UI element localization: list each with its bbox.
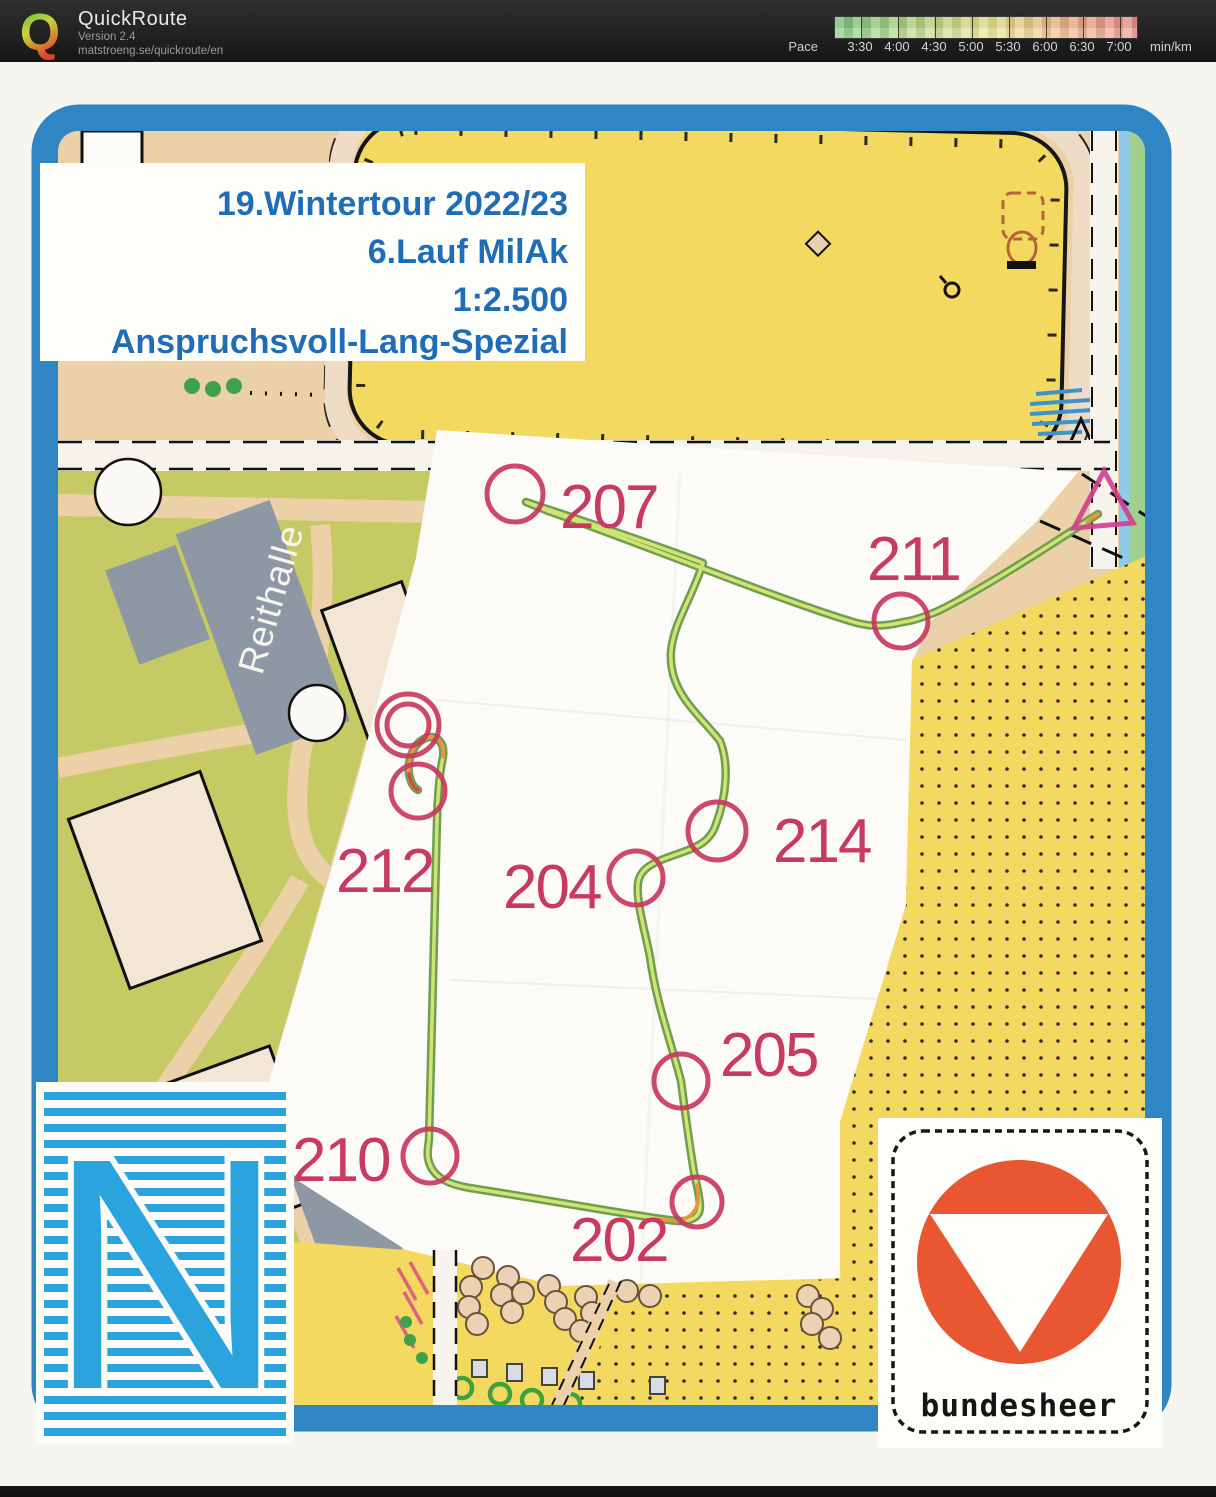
pace-tick: [1009, 17, 1010, 38]
title-line-4: Anspruchsvoll-Lang-Spezial: [111, 323, 568, 361]
pace-scale-label: Pace: [768, 39, 818, 54]
control-number-207: 207: [560, 473, 657, 542]
pace-tick-label: 7:00: [1106, 39, 1131, 54]
pace-tick-label: 6:00: [1032, 39, 1057, 54]
pace-unit-label: min/km: [1150, 39, 1192, 54]
app-title: QuickRoute: [78, 8, 188, 31]
control-number-210: 210: [292, 1126, 390, 1195]
pace-tick-label: 6:30: [1069, 39, 1094, 54]
logo-letter: Q: [20, 4, 60, 60]
orienteering-map: Reithalle: [0, 62, 1216, 1492]
pace-tick: [935, 17, 936, 38]
pace-tick-label: 4:30: [921, 39, 946, 54]
app-url: matstroeng.se/quickroute/en: [78, 45, 223, 57]
pace-tick: [972, 17, 973, 38]
quickroute-logo-icon: Q: [12, 4, 68, 60]
bundesheer-text: bundesheer: [921, 1388, 1118, 1424]
title-line-1: 19.Wintertour 2022/23: [217, 185, 568, 223]
control-number-202: 202: [570, 1206, 667, 1275]
pace-tick: [1120, 17, 1121, 38]
pace-tick: [1046, 17, 1047, 38]
pace-tick: [861, 17, 862, 38]
control-number-214: 214: [773, 807, 871, 876]
control-number-212: 212: [336, 837, 433, 906]
pace-tick: [898, 17, 899, 38]
pace-tick-label: 5:30: [995, 39, 1020, 54]
pace-tick-label: 4:00: [884, 39, 909, 54]
app-header: Q QuickRoute Version 2.4 matstroeng.se/q…: [0, 0, 1216, 63]
pace-tick: [1083, 17, 1084, 38]
map-canvas[interactable]: Reithalle: [0, 62, 1216, 1492]
bundesheer-logo: bundesheer: [878, 1118, 1162, 1448]
app-version: Version 2.4: [78, 31, 136, 43]
control-number-211: 211: [867, 525, 960, 594]
pace-gradient-bar: [834, 16, 1138, 39]
map-title-block: 19.Wintertour 2022/23 6.Lauf MilAk 1:2.5…: [40, 163, 585, 361]
window-bottom-edge: [0, 1486, 1216, 1492]
n-logo-letter: N: [47, 1089, 285, 1458]
pace-tick-label: 5:00: [958, 39, 983, 54]
pace-tick-label: 3:30: [847, 39, 872, 54]
title-line-3: 1:2.500: [453, 281, 568, 319]
control-number-204: 204: [503, 853, 601, 922]
title-line-2: 6.Lauf MilAk: [368, 233, 568, 271]
control-number-205: 205: [720, 1021, 817, 1090]
region-logo: N: [36, 1082, 294, 1458]
